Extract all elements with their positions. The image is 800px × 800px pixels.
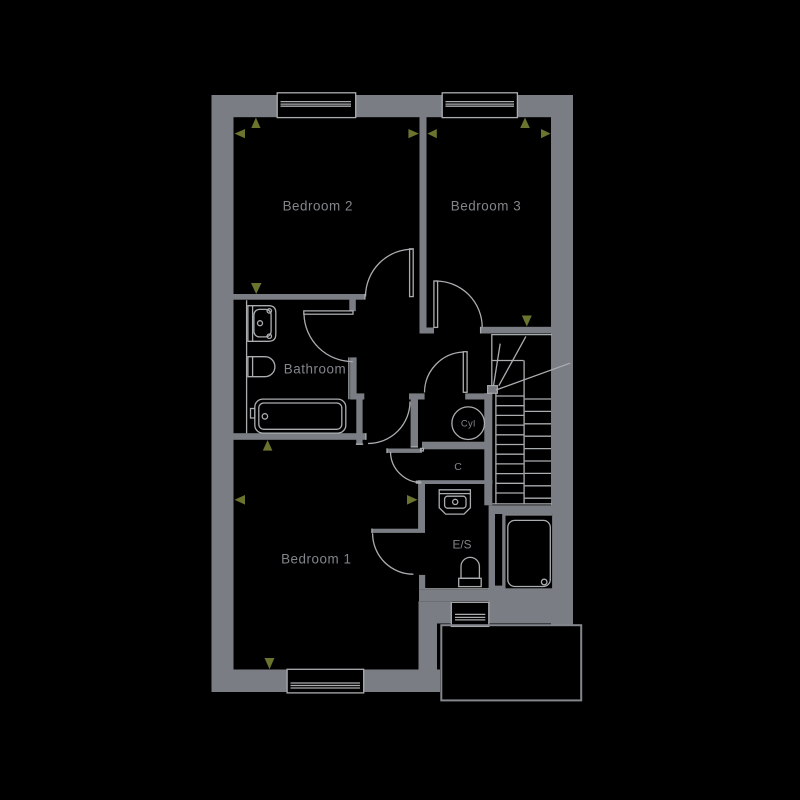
svg-text:Bedroom 3: Bedroom 3 (451, 199, 521, 214)
svg-text:Bedroom 1: Bedroom 1 (281, 552, 351, 567)
svg-text:Bathroom: Bathroom (284, 362, 346, 377)
svg-text:E/S: E/S (452, 537, 471, 551)
svg-text:Cyl: Cyl (461, 419, 476, 430)
svg-text:C: C (454, 461, 462, 473)
svg-text:Bedroom 2: Bedroom 2 (283, 199, 353, 214)
